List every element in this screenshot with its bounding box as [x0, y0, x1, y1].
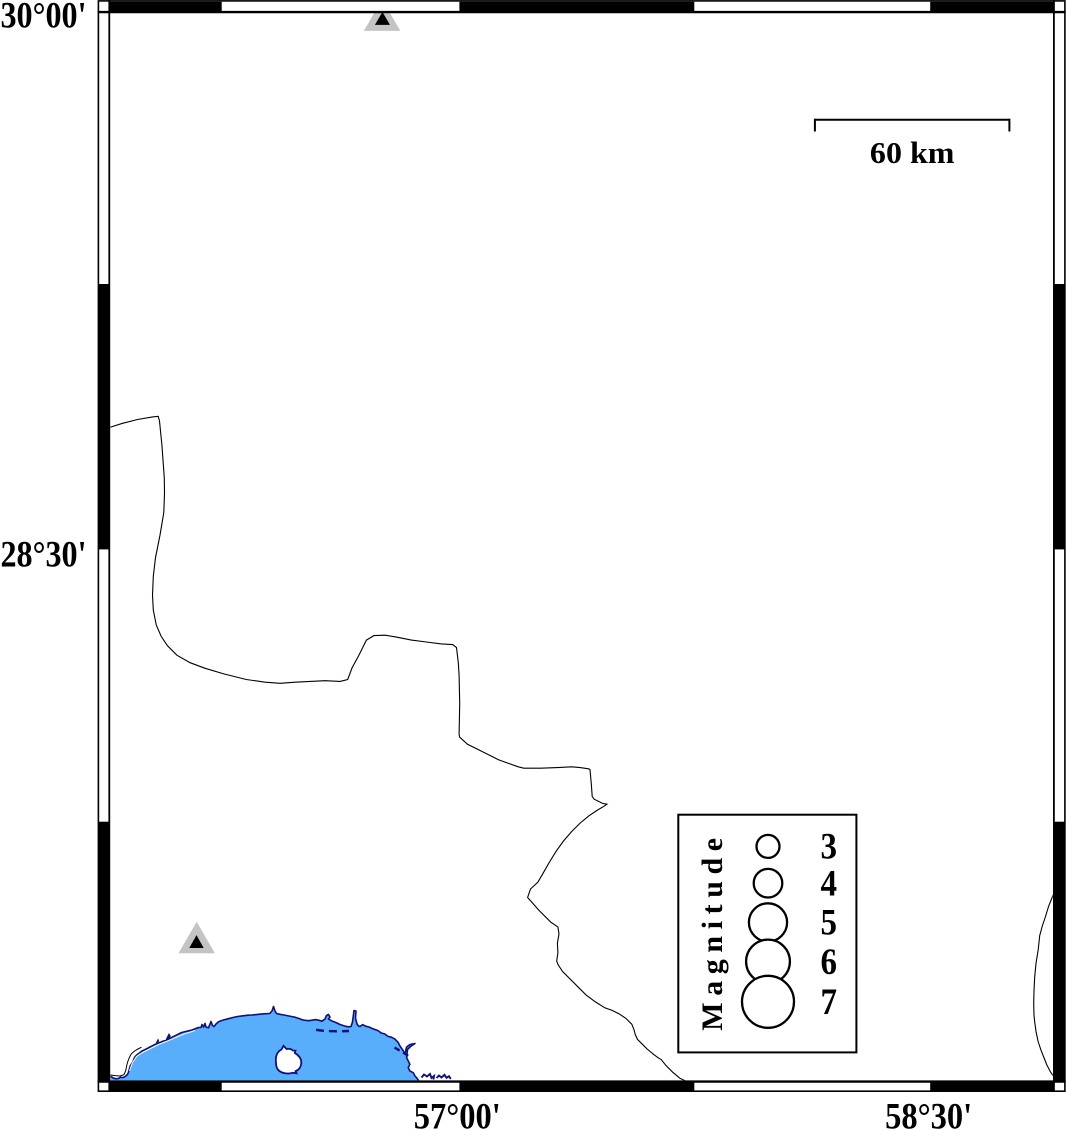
svg-text:58°30': 58°30': [885, 1097, 972, 1130]
svg-text:5: 5: [821, 902, 838, 943]
svg-text:4: 4: [821, 863, 838, 904]
svg-text:28°30': 28°30': [1, 534, 87, 575]
svg-text:60 km: 60 km: [870, 135, 955, 170]
svg-text:57°00': 57°00': [414, 1097, 501, 1130]
svg-text:6: 6: [821, 941, 838, 982]
svg-text:Magnitude: Magnitude: [696, 831, 729, 1030]
svg-text:7: 7: [821, 981, 838, 1022]
svg-text:30°00': 30°00': [1, 0, 87, 37]
svg-text:3: 3: [821, 826, 838, 867]
